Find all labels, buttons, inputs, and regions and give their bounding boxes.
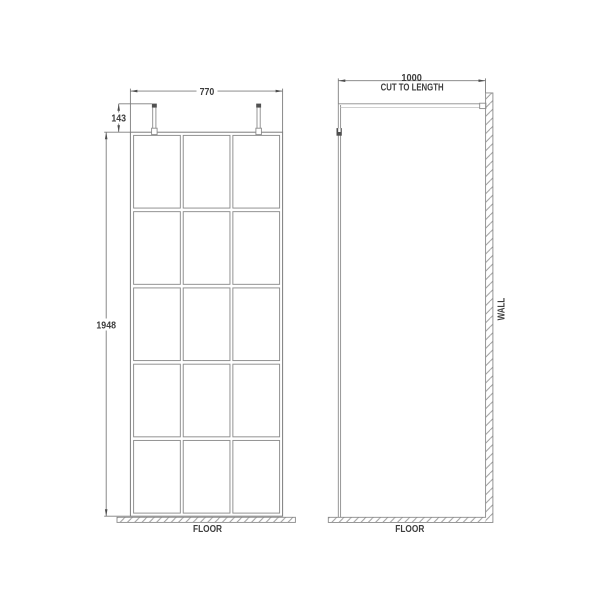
svg-text:FLOOR: FLOOR (395, 523, 424, 534)
svg-text:1948: 1948 (96, 319, 116, 331)
svg-text:770: 770 (200, 85, 215, 97)
svg-text:CUT TO LENGTH: CUT TO LENGTH (381, 82, 444, 93)
svg-text:FLOOR: FLOOR (193, 523, 222, 534)
svg-text:143: 143 (111, 112, 126, 124)
svg-text:WALL: WALL (496, 297, 507, 320)
